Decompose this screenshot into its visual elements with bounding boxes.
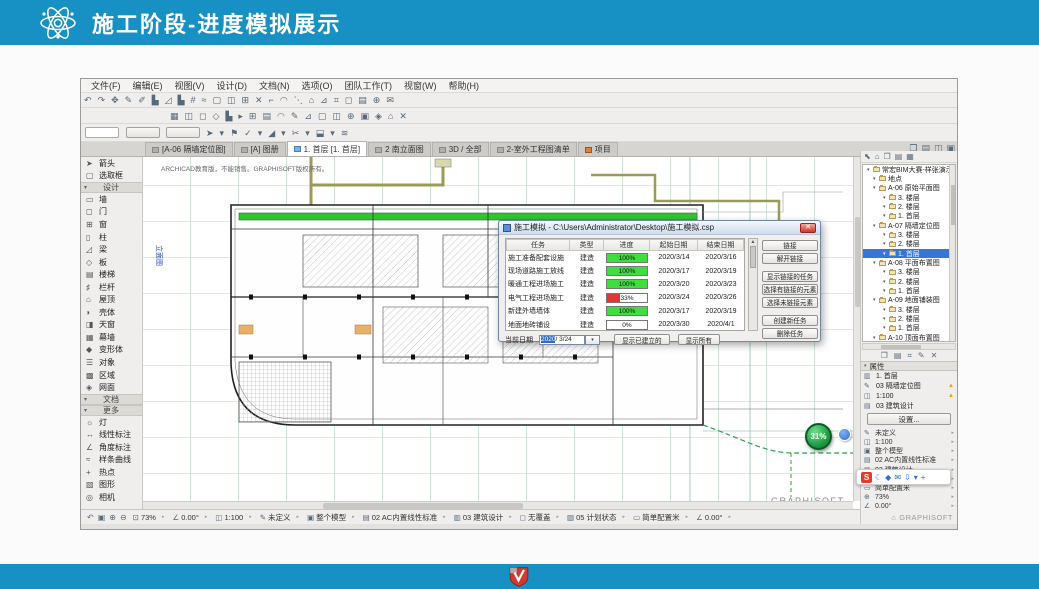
tree-item[interactable]: ▾ 3. 楼层 bbox=[863, 230, 955, 239]
toolbar-icon[interactable]: ◻ bbox=[342, 93, 355, 107]
tree-item[interactable]: ▾ 1. 首层 bbox=[863, 212, 955, 221]
tree-item[interactable]: ▾ 3. 楼层 bbox=[863, 305, 955, 314]
toolbox-item[interactable]: ♯ 栏杆 bbox=[81, 281, 142, 294]
dialog-button[interactable]: 显示链接的任务 bbox=[762, 271, 818, 282]
toolbox-item[interactable]: ◿ 梁 bbox=[81, 243, 142, 256]
quick-option-icon: ✎ bbox=[864, 429, 872, 437]
task-type: 建造 bbox=[570, 253, 604, 263]
tool-icon: ◇ bbox=[86, 258, 99, 267]
quick-option-value: 73% bbox=[875, 494, 889, 501]
tool-label: 角度标注 bbox=[99, 442, 131, 453]
toolbar-icon[interactable]: ✓ bbox=[241, 126, 255, 140]
column-header[interactable]: 结束日期 bbox=[698, 239, 744, 251]
toolbar-icon[interactable]: ⌐ bbox=[266, 93, 277, 107]
tab-document-icon bbox=[497, 147, 504, 153]
tab-document-icon bbox=[241, 147, 248, 153]
date-picker-dropdown[interactable]: ▾ bbox=[585, 335, 600, 345]
progress-bar: 33% bbox=[606, 293, 648, 303]
toolbox-item[interactable]: ◇ 板 bbox=[81, 256, 142, 269]
close-icon[interactable]: ✕ bbox=[800, 223, 816, 233]
task-type: 建造 bbox=[570, 279, 604, 289]
toolbar-icon[interactable]: ✥ bbox=[108, 93, 122, 107]
toolbar-icon[interactable]: ⚑ bbox=[227, 126, 241, 140]
tree-root[interactable]: ▾ 常宏BIM大赛-样张演示 bbox=[863, 165, 955, 174]
tree-item[interactable]: ▾ A-07 隔墙定位图 bbox=[863, 221, 955, 230]
tool-label: 选取框 bbox=[99, 170, 123, 181]
status-option[interactable]: ▤ 02 AC内置线性标准 bbox=[359, 512, 450, 523]
status-option[interactable]: ▧ 05 计划状态 bbox=[563, 512, 629, 523]
tree-item[interactable]: ▾ 2. 楼层 bbox=[863, 202, 955, 211]
folder-icon bbox=[879, 223, 886, 228]
toolbar-icon[interactable]: ✉ bbox=[383, 93, 397, 107]
property-value: 1. 首层 bbox=[876, 371, 898, 381]
tool-label: 幕墙 bbox=[99, 332, 115, 343]
start-date: 2020/3/30 bbox=[650, 321, 698, 328]
toolbar-icon[interactable]: ▾ bbox=[255, 126, 266, 140]
navigator-toolbar-icon[interactable]: ▤ bbox=[895, 152, 903, 161]
property-icon: ◫ bbox=[864, 392, 873, 400]
task-type: 建造 bbox=[570, 320, 604, 330]
toolbox-item[interactable]: ☰ 对象 bbox=[81, 356, 142, 369]
toolbar-icon[interactable]: ✎ bbox=[122, 93, 136, 107]
toolbox-item[interactable]: ◈ 网面 bbox=[81, 381, 142, 394]
toolbar-icon[interactable]: ◫ bbox=[224, 93, 239, 107]
scrollbar-thumb[interactable] bbox=[951, 185, 955, 225]
toolbox-item[interactable]: ≈ 样条曲线 bbox=[81, 453, 142, 466]
tree-item[interactable]: ▾ A-08 平面布置图 bbox=[863, 258, 955, 267]
status-option[interactable]: ⊡ 73% bbox=[129, 513, 169, 522]
task-type: 建造 bbox=[570, 306, 604, 316]
settings-button[interactable]: 设置... bbox=[867, 413, 951, 425]
column-header[interactable]: 进度 bbox=[604, 239, 650, 251]
tab-document-icon bbox=[152, 147, 159, 153]
menu-item[interactable]: 视窗(W) bbox=[398, 79, 443, 92]
tree-item[interactable]: ▾ 1. 首层 bbox=[863, 286, 955, 295]
toolbar-icon[interactable]: ⬓ bbox=[313, 126, 328, 140]
tool-label: 更多 bbox=[103, 405, 119, 416]
tool-label: 梁 bbox=[99, 244, 107, 255]
property-icon: ✎ bbox=[864, 382, 873, 390]
status-option-value: 03 建筑设计 bbox=[463, 512, 503, 523]
tool-icon: ▢ bbox=[86, 171, 99, 180]
navigator-action-icon[interactable]: ▤ bbox=[894, 351, 902, 360]
quick-options-bar: ↶ ▣ ⊕ ⊖ ⊡ 73% ∠ 0.00° ◫ 1:100 bbox=[81, 509, 860, 524]
toolbar-icon[interactable]: ◫ bbox=[329, 109, 344, 123]
toolbox-item[interactable]: ▧ 图形 bbox=[81, 479, 142, 492]
toolbox-item[interactable]: ∠ 角度标注 bbox=[81, 441, 142, 454]
dialog-button[interactable]: 选择有链接的元素 bbox=[762, 284, 818, 295]
toolbox-item[interactable]: ◗ 壳体 bbox=[81, 306, 142, 319]
navigator-toolbar-icon[interactable]: ⬉ bbox=[864, 152, 871, 161]
dialog-button[interactable]: 选择未链接元素 bbox=[762, 297, 818, 308]
tool-icon: ⊞ bbox=[86, 220, 99, 229]
quick-option-row[interactable]: ◫ 1:100 bbox=[861, 438, 957, 447]
column-header[interactable]: 任务 bbox=[506, 239, 570, 251]
navigator-toolbar-icon[interactable]: ▦ bbox=[906, 152, 914, 161]
tree-item[interactable]: ▾ 3. 楼层 bbox=[863, 268, 955, 277]
progress-bar: 100% bbox=[606, 306, 648, 316]
toolbar-icon[interactable]: ≋ bbox=[338, 126, 352, 140]
capture-toolbar-icon[interactable]: ☾ bbox=[875, 473, 882, 482]
toolbar-icon[interactable]: ⊿ bbox=[301, 109, 315, 123]
quick-option-row[interactable]: ▤ 02 AC内置线性标准 bbox=[861, 456, 957, 465]
start-date: 2020/3/17 bbox=[650, 268, 698, 275]
toolbar-icon[interactable]: ▾ bbox=[217, 126, 228, 140]
toolbar-icon[interactable]: ▾ bbox=[302, 126, 313, 140]
menu-bar: 文件(F)编辑(E)视图(V)设计(D)文档(N)选项(O)团队工作(T)视窗(… bbox=[81, 79, 957, 93]
toolbar-icon[interactable]: ➤ bbox=[203, 126, 217, 140]
task-type: 建造 bbox=[570, 266, 604, 276]
toolbar-icon[interactable]: # bbox=[188, 93, 199, 107]
zoom-in-icon[interactable]: ⊕ bbox=[107, 513, 118, 522]
toolbar-icon[interactable]: ◫ bbox=[182, 109, 197, 123]
toolbar-icon[interactable]: ▙ bbox=[222, 109, 235, 123]
toolbar-icon[interactable]: ▸ bbox=[235, 109, 246, 123]
toolbox-item[interactable]: ▭ 墙 bbox=[81, 193, 142, 206]
toolbox-item[interactable]: ▤ 楼梯 bbox=[81, 268, 142, 281]
toolbox-panel: ➤ 箭头 ▢ 选取框 设计 ▭ 墙 ◻ bbox=[81, 157, 143, 509]
task-name: 施工准备配套设施 bbox=[506, 253, 570, 263]
column-header[interactable]: 类型 bbox=[570, 239, 604, 251]
tool-icon: ➤ bbox=[86, 159, 99, 168]
tool-icon: ♯ bbox=[86, 283, 99, 292]
status-option-icon: ⊡ bbox=[133, 513, 139, 522]
toolbar-icon[interactable]: ↷ bbox=[95, 93, 109, 107]
folder-icon bbox=[889, 307, 896, 312]
status-option[interactable]: ◫ 1:100 bbox=[211, 513, 255, 522]
property-row[interactable]: ▥ 1. 首层 ▲ bbox=[861, 371, 957, 381]
menu-item[interactable]: 视图(V) bbox=[169, 79, 211, 92]
menu-item[interactable]: 设计(D) bbox=[211, 79, 254, 92]
toolbox-item[interactable]: ▩ 区域 bbox=[81, 369, 142, 382]
folder-icon bbox=[879, 298, 886, 303]
toolbar-mini-button[interactable] bbox=[166, 127, 200, 138]
toolbar-row-3: ➤▾⚑✓▾◢▾✂▾⬓▾≋ bbox=[81, 124, 957, 142]
capture-app-logo[interactable]: S bbox=[861, 472, 872, 483]
toolbar-icon[interactable]: ▦ bbox=[167, 109, 182, 123]
folder-icon bbox=[879, 335, 886, 340]
status-option[interactable]: ◻ 无覆盖 bbox=[516, 512, 563, 523]
tree-scrollbar[interactable] bbox=[949, 165, 955, 341]
status-option-icon: ◻ bbox=[520, 513, 526, 522]
warning-icon: ▲ bbox=[948, 383, 954, 389]
tool-label: 区域 bbox=[99, 370, 115, 381]
task-table: 任务类型进度起始日期结束日期 施工准备配套设施 建造 100% bbox=[505, 238, 745, 331]
task-name: 电气工程进场施工 bbox=[506, 293, 570, 303]
toolbar-icon[interactable]: ▢ bbox=[315, 109, 330, 123]
zoom-out-icon[interactable]: ⊖ bbox=[118, 513, 129, 522]
toolbox-item[interactable]: ◆ 变形体 bbox=[81, 344, 142, 357]
atom-logo-icon bbox=[38, 4, 78, 42]
property-row[interactable]: ◫ 1:100 ▲ bbox=[861, 391, 957, 401]
tab-bar: ❐▤◫▣ [A-06 隔墙定位图] [A] 图册 1. 首层 [1. 首层] bbox=[81, 142, 957, 157]
document-tab[interactable]: 2 南立面图 bbox=[368, 142, 431, 156]
task-type: 建造 bbox=[570, 293, 604, 303]
toolbar-icon[interactable]: ↶ bbox=[81, 93, 95, 107]
toolbar-icon[interactable]: ⊿ bbox=[317, 93, 331, 107]
column-header[interactable]: 起始日期 bbox=[650, 239, 698, 251]
capture-toolbar-icon[interactable]: ◆ bbox=[885, 473, 891, 482]
table-body: 施工准备配套设施 建造 100% 2020/3/14 2020/3/16 bbox=[506, 251, 744, 331]
toolbar-icon[interactable]: ⊞ bbox=[239, 93, 253, 107]
table-scrollbar[interactable]: ▲ bbox=[748, 238, 758, 331]
tree-item[interactable]: ▾ A-09 地面铺装图 bbox=[863, 296, 955, 305]
capture-toolbar-icon[interactable]: ⇩ bbox=[904, 473, 911, 482]
menu-item[interactable]: 选项(O) bbox=[296, 79, 339, 92]
tool-icon: ◎ bbox=[86, 493, 99, 502]
menu-item[interactable]: 文件(F) bbox=[85, 79, 127, 92]
show-built-button[interactable]: 显示已建立的 bbox=[614, 334, 670, 345]
toolbar-icon[interactable]: ⌂ bbox=[385, 109, 396, 123]
tab-document-icon bbox=[585, 147, 592, 153]
status-option-value: 02 AC内置线性标准 bbox=[372, 512, 437, 523]
toolbar-icon[interactable]: ✕ bbox=[396, 109, 410, 123]
toolbar-icon[interactable]: ✐ bbox=[135, 93, 149, 107]
properties-list: ▥ 1. 首层 ▲ ✎ 03 隔墙定位图 ▲ ◫ 1:100 ▲ bbox=[861, 371, 957, 411]
tool-label: 门 bbox=[99, 206, 107, 217]
quick-option-row[interactable]: ∠ 0.00° bbox=[861, 502, 957, 511]
progress-value: 100% bbox=[607, 307, 647, 316]
page-title: 施工阶段-进度模拟展示 bbox=[92, 7, 341, 39]
tool-icon: ◨ bbox=[86, 320, 99, 329]
tree-item[interactable]: ▾ 地点 bbox=[863, 174, 955, 183]
task-row[interactable]: 施工准备配套设施 建造 100% 2020/3/14 2020/3/16 bbox=[506, 251, 744, 264]
toolbar-icon[interactable]: ◻ bbox=[196, 109, 209, 123]
toolbar-icon[interactable]: ▙ bbox=[175, 93, 188, 107]
toolbox-item[interactable]: ◨ 天窗 bbox=[81, 319, 142, 332]
toolbar-icon[interactable]: ◢ bbox=[265, 126, 278, 140]
toolbar-icon[interactable]: ▤ bbox=[259, 109, 274, 123]
tool-icon: ∠ bbox=[86, 443, 99, 452]
toolbar-icon[interactable]: ▾ bbox=[327, 126, 338, 140]
tool-label: 窗 bbox=[99, 219, 107, 230]
current-date-input[interactable]: 2020 / 3/24 bbox=[539, 335, 585, 345]
quick-option-row[interactable]: ✎ 未定义 bbox=[861, 428, 957, 437]
tree-item[interactable]: ▾ A-10 顶面布置图 bbox=[863, 333, 955, 342]
folder-icon bbox=[889, 214, 896, 219]
toolbar-icon[interactable]: ▢ bbox=[209, 93, 224, 107]
menu-item[interactable]: 文档(N) bbox=[253, 79, 296, 92]
status-option-value: 0.00° bbox=[705, 513, 723, 522]
status-option[interactable]: ✎ 未定义 bbox=[256, 512, 303, 523]
toolbox-item[interactable]: 设计 bbox=[81, 182, 142, 193]
toolbar-icon[interactable]: ⊕ bbox=[370, 93, 384, 107]
toolbar-icon[interactable]: ✎ bbox=[288, 109, 302, 123]
tool-label: 板 bbox=[99, 257, 107, 268]
quick-option-icon: ▭ bbox=[864, 484, 872, 492]
scrollbar-thumb[interactable] bbox=[881, 345, 921, 349]
progress-bar: 100% bbox=[606, 266, 648, 276]
quick-option-icon: ∠ bbox=[864, 502, 872, 510]
toolbar-icon[interactable]: ◠ bbox=[277, 93, 291, 107]
task-row[interactable]: 现场道路施工放线 建造 100% 2020/3/17 2020/3/19 bbox=[506, 264, 744, 277]
status-option-value: 73% bbox=[141, 513, 156, 522]
toolbar-icon[interactable]: ▣ bbox=[357, 109, 372, 123]
task-row[interactable]: 新建外墙墙体 建造 100% 2020/3/17 2020/3/19 bbox=[506, 305, 744, 318]
tab-label: 1. 首层 [1. 首层] bbox=[304, 144, 360, 155]
toolbar-input-field[interactable] bbox=[85, 127, 119, 138]
status-option[interactable]: ∠ 0.00° bbox=[169, 513, 212, 522]
toolbox-item[interactable]: ◎ 相机 bbox=[81, 491, 142, 504]
scrollbar-thumb[interactable] bbox=[750, 246, 756, 268]
toolbox-item[interactable]: ▦ 幕墙 bbox=[81, 331, 142, 344]
property-value: 03 建筑设计 bbox=[876, 401, 914, 411]
toolbar-icon[interactable]: ⌗ bbox=[331, 93, 342, 107]
toolbox-item[interactable]: 文档 bbox=[81, 394, 142, 405]
toolbar-icon[interactable]: ▙ bbox=[149, 93, 162, 107]
task-row[interactable]: 地面地砖铺设 建造 0% 2020/3/30 2020/4/1 bbox=[506, 318, 744, 331]
property-row[interactable]: ✎ 03 隔墙定位图 ▲ bbox=[861, 381, 957, 391]
tool-icon: ☰ bbox=[86, 358, 99, 367]
tool-icon: ☼ bbox=[86, 418, 99, 427]
end-date: 2020/4/1 bbox=[698, 321, 744, 328]
canvas-horizontal-scrollbar[interactable] bbox=[143, 501, 853, 509]
navigator-toolbar-icon[interactable]: ❐ bbox=[884, 152, 891, 161]
toolbox-item[interactable]: ☼ 灯 bbox=[81, 416, 142, 429]
document-tab[interactable]: 1. 首层 [1. 首层] bbox=[287, 141, 367, 156]
capture-toolbar-icon[interactable]: + bbox=[921, 473, 926, 482]
status-option-icon: ▤ bbox=[363, 513, 370, 522]
toolbox-item[interactable]: ▯ 柱 bbox=[81, 231, 142, 244]
tab-label: 2-室外工程图清单 bbox=[507, 144, 570, 155]
toolbar-icon[interactable]: ▤ bbox=[355, 93, 370, 107]
end-date: 2020/3/19 bbox=[698, 308, 744, 315]
toolbar-icon[interactable]: ✕ bbox=[252, 93, 266, 107]
quick-option-row[interactable]: ⊕ 73% bbox=[861, 493, 957, 502]
tool-icon: ▩ bbox=[86, 371, 99, 380]
task-name: 新建外墙墙体 bbox=[506, 306, 570, 316]
toolbar-icon[interactable]: ⋱ bbox=[291, 93, 306, 107]
document-tab[interactable]: 项目 bbox=[578, 142, 618, 156]
status-option-icon: ▣ bbox=[307, 513, 314, 522]
task-row[interactable]: 暖通工程进场施工 建造 100% 2020/3/20 2020/3/23 bbox=[506, 278, 744, 291]
tab-label: [A] 图册 bbox=[251, 144, 279, 155]
status-option[interactable]: ▣ 整个模型 bbox=[303, 512, 359, 523]
capture-progress-badge[interactable]: 31% bbox=[805, 423, 832, 450]
toolbar-icon[interactable]: ◈ bbox=[372, 109, 385, 123]
toolbox-item[interactable]: ⌂ 屋顶 bbox=[81, 293, 142, 306]
tab-document-icon bbox=[375, 147, 382, 153]
menu-item[interactable]: 编辑(E) bbox=[127, 79, 169, 92]
status-option-icon: ▭ bbox=[633, 513, 640, 522]
toolbar-icon[interactable]: ≈ bbox=[199, 93, 210, 107]
dialog-title-bar[interactable]: 施工模拟 - C:\Users\Administrator\Desktop\施工… bbox=[499, 221, 820, 235]
toolbar-icon[interactable]: ⌂ bbox=[306, 93, 317, 107]
toolbox-item[interactable]: ◻ 门 bbox=[81, 206, 142, 219]
quick-option-icon: ◫ bbox=[864, 438, 872, 446]
navigator-action-icon[interactable]: ⌗ bbox=[907, 351, 912, 361]
document-tab[interactable]: 2-室外工程图清单 bbox=[490, 142, 577, 156]
tree-item[interactable]: ▾ 2. 楼层 bbox=[863, 240, 955, 249]
navigator-action-icon[interactable]: ✎ bbox=[918, 351, 925, 360]
dialog-button[interactable]: 创建新任务 bbox=[762, 315, 818, 326]
toolbar-icon[interactable]: ◇ bbox=[210, 109, 223, 123]
toolbox-item[interactable]: ➤ 箭头 bbox=[81, 157, 142, 170]
toolbar-icon[interactable]: ⊕ bbox=[344, 109, 358, 123]
dialog-button[interactable]: 解开链接 bbox=[762, 253, 818, 264]
tree-item[interactable]: ▾ 1. 首层 bbox=[863, 324, 955, 333]
navigator-action-icon[interactable]: ✕ bbox=[931, 351, 938, 360]
navigator-action-icon[interactable]: ❐ bbox=[881, 351, 888, 360]
status-option[interactable]: ∠ 0.00° bbox=[692, 513, 735, 522]
navigator-toolbar-icon[interactable]: ⌂ bbox=[875, 152, 880, 161]
property-row[interactable]: ▤ 03 建筑设计 ▲ bbox=[861, 401, 957, 411]
tree-item-label: A-10 顶面布置图 bbox=[888, 333, 940, 342]
menu-item[interactable]: 帮助(H) bbox=[443, 79, 486, 92]
toolbox-item[interactable]: ↔ 线性标注 bbox=[81, 428, 142, 441]
toolbar-icon[interactable]: ◠ bbox=[274, 109, 288, 123]
toolbar-mini-button[interactable] bbox=[126, 127, 160, 138]
toolbox-item[interactable]: 更多 bbox=[81, 405, 142, 416]
quick-option-icon: ▤ bbox=[864, 456, 872, 464]
folder-icon bbox=[889, 279, 896, 284]
status-option[interactable]: ▥ 03 建筑设计 bbox=[450, 512, 516, 523]
fit-view-icon[interactable]: ▣ bbox=[96, 513, 108, 522]
tree-horizontal-scrollbar[interactable] bbox=[862, 343, 956, 350]
document-tab[interactable]: 3D / 全部 bbox=[432, 142, 489, 156]
menu-item[interactable]: 团队工作(T) bbox=[339, 79, 399, 92]
status-option-icon: ▧ bbox=[567, 513, 574, 522]
properties-header[interactable]: 属性 bbox=[861, 361, 957, 371]
archicad-window: 文件(F)编辑(E)视图(V)设计(D)文档(N)选项(O)团队工作(T)视窗(… bbox=[80, 78, 958, 530]
tree-item[interactable]: ▾ 2. 楼层 bbox=[863, 314, 955, 323]
start-date: 2020/3/20 bbox=[650, 281, 698, 288]
status-option-value: 简单配置米 bbox=[642, 512, 680, 523]
back-icon[interactable]: ↶ bbox=[85, 513, 96, 522]
document-tab[interactable]: [A] 图册 bbox=[234, 142, 286, 156]
capture-toolbar-icon[interactable]: ✉ bbox=[894, 473, 901, 482]
show-all-button[interactable]: 显示所有 bbox=[678, 334, 720, 345]
tree-item[interactable]: ▾ 2. 楼层 bbox=[863, 277, 955, 286]
toolbar-icon[interactable]: ▾ bbox=[278, 126, 289, 140]
task-row[interactable]: 电气工程进场施工 建造 33% 2020/3/24 2020/3/26 bbox=[506, 291, 744, 304]
folder-icon bbox=[889, 233, 896, 238]
status-option-icon: ✎ bbox=[260, 513, 266, 522]
tree-item[interactable]: ▾ 1. 首层 bbox=[863, 249, 955, 258]
quick-option-row[interactable]: ▣ 整个模型 bbox=[861, 447, 957, 456]
tree-item[interactable]: ▾ A-06 原始平面图 bbox=[863, 184, 955, 193]
canvas-vertical-scrollbar[interactable] bbox=[853, 157, 860, 501]
status-option-value: 未定义 bbox=[268, 512, 291, 523]
toolbar-icon[interactable]: ⊞ bbox=[246, 109, 260, 123]
toolbox-item[interactable]: + 热点 bbox=[81, 466, 142, 479]
toolbar-icon[interactable]: ✂ bbox=[289, 126, 303, 140]
tool-label: 栏杆 bbox=[99, 282, 115, 293]
toolbar-icon[interactable]: ◿ bbox=[162, 93, 175, 107]
status-option[interactable]: ▭ 简单配置米 bbox=[629, 512, 692, 523]
tool-icon: ▭ bbox=[86, 195, 99, 204]
toolbar-row-2: ▦◫◻◇▙▸⊞▤◠✎⊿▢◫⊕▣◈⌂✕ bbox=[81, 108, 957, 124]
progress-value: 100% bbox=[607, 267, 647, 276]
status-option-value: 1:100 bbox=[224, 513, 243, 522]
capture-toolbar-icon[interactable]: ▾ bbox=[914, 473, 918, 482]
document-tab[interactable]: [A-06 隔墙定位图] bbox=[145, 142, 233, 156]
tool-label: 柱 bbox=[99, 232, 107, 243]
end-date: 2020/3/23 bbox=[698, 281, 744, 288]
folder-icon bbox=[889, 326, 896, 331]
dialog-button[interactable]: 链接 bbox=[762, 240, 818, 251]
capture-toolbar[interactable]: S ☾◆✉⇩▾+ bbox=[856, 469, 951, 485]
capture-helper-icon[interactable] bbox=[838, 428, 851, 441]
quick-option-value: 0.00° bbox=[875, 503, 891, 510]
toolbox-item[interactable]: ▢ 选取框 bbox=[81, 170, 142, 183]
toolbox-item[interactable]: ⊞ 窗 bbox=[81, 218, 142, 231]
tree-item[interactable]: ▾ 3. 楼层 bbox=[863, 193, 955, 202]
tool-icon: ◻ bbox=[86, 207, 99, 216]
start-date: 2020/3/24 bbox=[650, 294, 698, 301]
dialog-footer: 当前日期 2020 / 3/24 ▾ 显示已建立的 显示所有 bbox=[505, 334, 816, 345]
quick-option-value: 1:100 bbox=[875, 439, 893, 446]
